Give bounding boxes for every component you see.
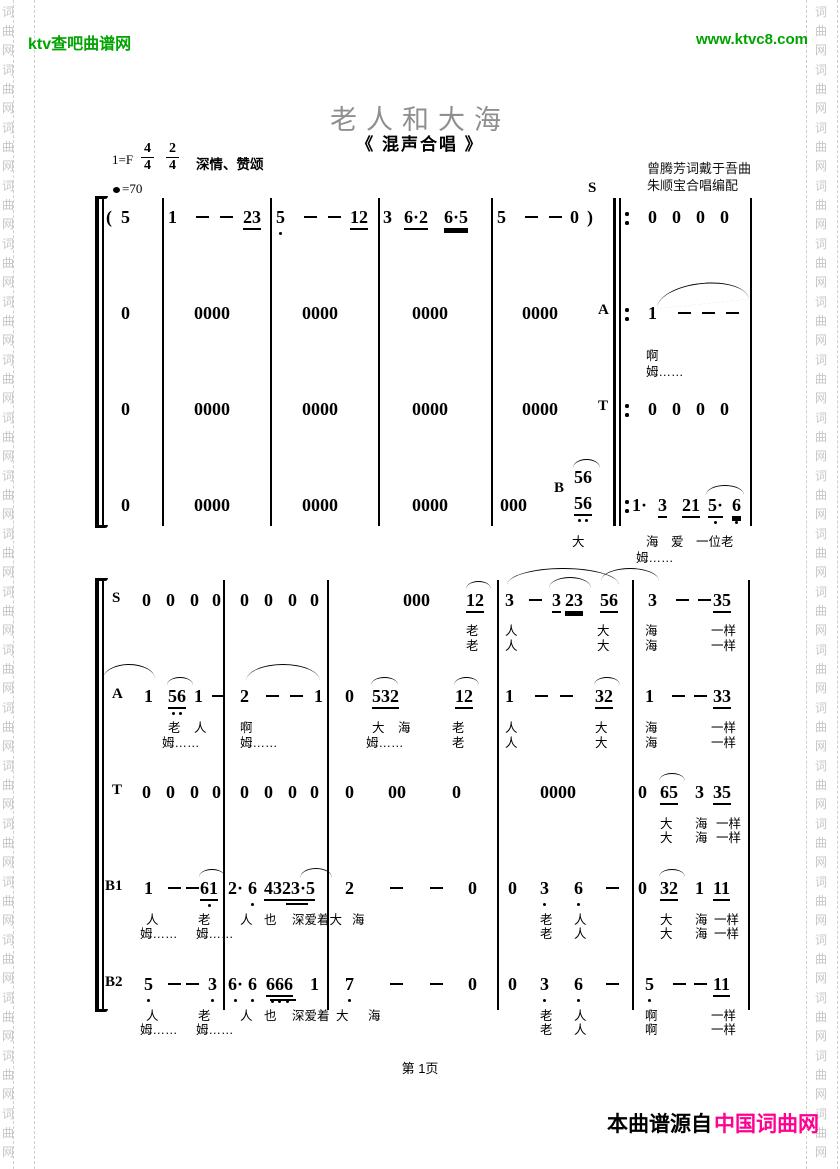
- note-token: 0: [570, 207, 579, 227]
- watermark-char: 网: [2, 334, 14, 346]
- lyric: 海: [645, 639, 658, 653]
- lyric: 姆……: [646, 365, 684, 379]
- note-token: 1: [144, 686, 153, 706]
- lyric: 一样: [711, 736, 736, 750]
- watermark-char: 曲: [2, 25, 14, 37]
- note-token: 23: [243, 207, 261, 230]
- duration-dash: [676, 599, 689, 601]
- duration-dash: [196, 216, 209, 218]
- duration-dash: [220, 216, 233, 218]
- octave-dots: [540, 999, 549, 1002]
- note-token: 0: [468, 878, 477, 898]
- voice-label-S: S: [588, 178, 596, 198]
- watermark-char: 网: [815, 856, 827, 868]
- watermark-char: 网: [2, 44, 14, 56]
- duration-dash: [328, 216, 341, 218]
- watermark-char: 词: [2, 470, 14, 482]
- watermark-char: 词: [2, 64, 14, 76]
- voice-label-S: S: [112, 588, 120, 608]
- lyric: 姆……: [196, 1023, 234, 1037]
- watermark-char: 词: [2, 528, 14, 540]
- watermark-char: 曲: [815, 257, 827, 269]
- lyric: 海: [352, 913, 365, 927]
- lyric: 老: [198, 913, 211, 927]
- lyric: 啊: [240, 721, 253, 735]
- lyric: 人: [505, 721, 518, 735]
- duration-dash: [290, 695, 303, 697]
- lyric: 老: [540, 1023, 553, 1037]
- watermark-char: 曲: [815, 315, 827, 327]
- watermark-char: 网: [815, 972, 827, 984]
- slur-arc: [655, 278, 749, 309]
- lyric: 啊: [645, 1023, 658, 1037]
- note-token: 0: [720, 207, 729, 227]
- note-token: 0: [121, 495, 130, 515]
- duration-dash: [606, 983, 619, 985]
- lyric: 姆……: [140, 927, 178, 941]
- duration-dash: [694, 983, 707, 985]
- watermark-char: 网: [2, 798, 14, 810]
- voice-label-A: A: [598, 300, 609, 320]
- duration-dash: [212, 695, 225, 697]
- watermark-char: 曲: [2, 779, 14, 791]
- note-token: 6: [248, 878, 257, 898]
- watermark-char: 网: [2, 566, 14, 578]
- duration-dash: [678, 312, 691, 314]
- duration-dash: [266, 695, 279, 697]
- watermark-char: 网: [2, 856, 14, 868]
- watermark-char: 网: [2, 1030, 14, 1042]
- watermark-char: 词: [2, 876, 14, 888]
- octave-dots: [540, 903, 549, 906]
- lyric: 深爱着: [292, 1009, 330, 1023]
- note-token: 0: [648, 399, 657, 419]
- system-bracket-inner: [102, 198, 104, 526]
- octave-dots: [645, 999, 654, 1002]
- note-token: 0: [212, 590, 221, 610]
- duration-dash: [168, 887, 181, 889]
- lyric: 人: [574, 913, 587, 927]
- note-token: 12: [455, 686, 473, 709]
- note-token: 0: [190, 782, 199, 802]
- note-token: 0000: [412, 399, 448, 419]
- note-token: 56: [168, 686, 186, 709]
- time-sig-denominator: 4: [141, 158, 154, 173]
- note-token: 0: [190, 590, 199, 610]
- note-token: 33: [713, 686, 731, 709]
- lyric: 人: [146, 913, 159, 927]
- note-token: 0: [121, 399, 130, 419]
- lyric: 大: [660, 817, 673, 831]
- watermark-char: 网: [2, 682, 14, 694]
- watermark-char: 词: [2, 992, 14, 1004]
- watermark-char: 词: [815, 760, 827, 772]
- note-token: 0: [648, 207, 657, 227]
- watermark-char: 网: [815, 1088, 827, 1100]
- note-token: (: [106, 207, 112, 227]
- octave-dots: [168, 712, 186, 715]
- note-token: 0: [508, 974, 517, 994]
- note-token: 5: [645, 974, 654, 994]
- note-token: 0: [264, 782, 273, 802]
- note-token: 000: [403, 590, 430, 610]
- right-watermark-column: 词曲网词曲网词曲网词曲网词曲网词曲网词曲网词曲网词曲网词曲网词曲网词曲网词曲网词…: [815, 0, 831, 1169]
- lyric: 老: [540, 927, 553, 941]
- note-token: 0: [166, 782, 175, 802]
- site-name-link[interactable]: ktv查吧曲谱网: [28, 30, 131, 54]
- note-token: 0: [288, 782, 297, 802]
- lyric: 老: [540, 913, 553, 927]
- lyric: 姆……: [196, 927, 234, 941]
- note-token: 0000: [302, 303, 338, 323]
- watermark-char: 曲: [815, 605, 827, 617]
- note-token: 5: [121, 207, 130, 227]
- note-token: 35: [713, 590, 731, 613]
- repeat-dot: [625, 221, 629, 225]
- watermark-char: 曲: [2, 895, 14, 907]
- watermark-char: 网: [815, 682, 827, 694]
- repeat-dot: [625, 212, 629, 216]
- note-token: 11: [713, 974, 730, 997]
- watermark-char: 网: [2, 914, 14, 926]
- note-token: 2: [240, 686, 249, 706]
- note-token: 0000: [522, 303, 558, 323]
- watermark-char: 词: [2, 760, 14, 772]
- note-token: 7: [345, 974, 354, 994]
- slur-arc: [594, 677, 620, 685]
- watermark-char: 词: [815, 354, 827, 366]
- slur-arc: [573, 459, 600, 468]
- duration-dash: [535, 695, 548, 697]
- score-page: 词曲网词曲网词曲网词曲网词曲网词曲网词曲网词曲网词曲网词曲网词曲网词曲网词曲网词…: [0, 0, 840, 1169]
- barline: [327, 580, 329, 1010]
- slur-arc: [167, 677, 193, 685]
- watermark-char: 曲: [2, 431, 14, 443]
- duration-dash: [560, 695, 573, 697]
- lyric: 一样: [711, 624, 736, 638]
- note-token: 61: [200, 878, 218, 901]
- lyric: 老: [466, 639, 479, 653]
- note-token: 5: [276, 207, 285, 227]
- repeat-dot: [625, 509, 629, 513]
- octave-dots: [276, 232, 285, 235]
- note-token: 6·: [228, 974, 243, 994]
- system-bracket: [95, 580, 99, 1010]
- lyric: 大: [595, 736, 608, 750]
- note-token: 6: [248, 974, 257, 994]
- watermark-char: 网: [815, 450, 827, 462]
- watermark-char: 词: [2, 1108, 14, 1120]
- duration-dash: [430, 983, 443, 985]
- note-token: 56: [600, 590, 618, 613]
- duration-dash: [726, 312, 739, 314]
- key-signature: 1=F: [112, 152, 133, 168]
- note-token: 6·2: [404, 207, 428, 230]
- note-token: 0: [142, 590, 151, 610]
- note-token: 0: [638, 782, 647, 802]
- note-token: 0: [468, 974, 477, 994]
- note-token: 0: [345, 686, 354, 706]
- lyric: 人: [505, 639, 518, 653]
- lyric: 老: [466, 624, 479, 638]
- watermark-char: 网: [815, 740, 827, 752]
- watermark-char: 曲: [815, 663, 827, 675]
- watermark-char: 曲: [815, 895, 827, 907]
- time-sig-denominator: 4: [166, 158, 179, 173]
- watermark-char: 网: [815, 508, 827, 520]
- bracket-hook-bottom: [95, 525, 108, 528]
- note-token: 0000: [412, 303, 448, 323]
- left-watermark-column: 词曲网词曲网词曲网词曲网词曲网词曲网词曲网词曲网词曲网词曲网词曲网词曲网词曲网词…: [2, 0, 18, 1169]
- note-token: 6: [574, 974, 583, 994]
- octave-dots: [708, 521, 723, 524]
- watermark-char: 曲: [2, 315, 14, 327]
- note-token: 56: [574, 493, 592, 516]
- note-token: 1: [194, 686, 203, 706]
- site-url-link[interactable]: www.ktvc8.com: [696, 31, 808, 48]
- watermark-char: 网: [2, 160, 14, 172]
- note-token: 6·5: [444, 207, 468, 230]
- note-token: 6: [574, 878, 583, 898]
- watermark-char: 网: [815, 1030, 827, 1042]
- note-token: 0000: [194, 399, 230, 419]
- watermark-char: 曲: [2, 605, 14, 617]
- watermark-char: 曲: [2, 83, 14, 95]
- voice-label-B: B: [554, 478, 564, 498]
- lyric: 人: [146, 1009, 159, 1023]
- lyric: 老: [452, 736, 465, 750]
- note-token: 3: [208, 974, 217, 994]
- watermark-char: 曲: [2, 1127, 14, 1139]
- watermark-char: 曲: [815, 721, 827, 733]
- watermark-char: 曲: [815, 779, 827, 791]
- note-token: 3: [658, 495, 667, 518]
- note-token: 0: [310, 782, 319, 802]
- watermark-char: 曲: [2, 489, 14, 501]
- duration-dash: [186, 887, 199, 889]
- octave-dots: [574, 903, 583, 906]
- source-prefix: 本曲谱源自: [607, 1108, 712, 1138]
- lyric: 姆……: [162, 736, 200, 750]
- watermark-char: 曲: [2, 373, 14, 385]
- lyric: 深爱着大: [292, 913, 342, 927]
- lyric: 海: [695, 831, 708, 845]
- barline: [632, 580, 634, 1010]
- note-token: 1: [645, 686, 654, 706]
- duration-dash: [698, 599, 711, 601]
- note-token: 65: [660, 782, 678, 805]
- watermark-char: 曲: [2, 721, 14, 733]
- duration-dash: [304, 216, 317, 218]
- voice-label-T: T: [112, 780, 122, 800]
- note-token: 32: [660, 878, 678, 901]
- watermark-char: 词: [815, 412, 827, 424]
- watermark-char: 网: [815, 624, 827, 636]
- watermark-char: 词: [815, 238, 827, 250]
- watermark-char: 曲: [815, 489, 827, 501]
- watermark-char: 词: [2, 354, 14, 366]
- octave-dots: [208, 999, 217, 1002]
- watermark-char: 网: [2, 740, 14, 752]
- extra-underline: [286, 903, 308, 905]
- duration-dash: [168, 983, 181, 985]
- watermark-char: 词: [815, 992, 827, 1004]
- time-signature: 4 4: [141, 142, 154, 173]
- watermark-char: 词: [2, 644, 14, 656]
- note-token: 0: [452, 782, 461, 802]
- watermark-char: 网: [2, 972, 14, 984]
- lyric: 人: [240, 1009, 253, 1023]
- lyric: 海: [695, 913, 708, 927]
- watermark-char: 曲: [815, 837, 827, 849]
- lyric: 海: [645, 624, 658, 638]
- watermark-char: 曲: [815, 547, 827, 559]
- voice-label-B2: B2: [105, 972, 123, 992]
- octave-dots: [228, 999, 243, 1002]
- note-token: 3: [552, 590, 561, 613]
- slur-arc: [659, 773, 685, 781]
- watermark-char: 网: [2, 508, 14, 520]
- note-token: 0000: [540, 782, 576, 802]
- note-token: 3: [505, 590, 514, 610]
- lyric: 一样: [714, 913, 739, 927]
- duration-dash: [672, 695, 685, 697]
- octave-dots: [345, 999, 354, 1002]
- lyric: 老: [540, 1009, 553, 1023]
- bracket-hook-top: [95, 578, 108, 581]
- repeat-barline-thick: [613, 198, 616, 526]
- lyric: 一样: [711, 1023, 736, 1037]
- watermark-char: 词: [815, 818, 827, 830]
- bracket-hook-top: [95, 196, 108, 199]
- watermark-char: 网: [815, 1146, 827, 1158]
- repeat-dot: [625, 308, 629, 312]
- note-token: 23: [565, 590, 583, 613]
- note-token: 2·: [228, 878, 243, 898]
- note-token: 1: [168, 207, 177, 227]
- watermark-char: 曲: [2, 953, 14, 965]
- note-token: 0: [672, 399, 681, 419]
- lyric: 老: [452, 721, 465, 735]
- watermark-char: 曲: [815, 199, 827, 211]
- watermark-char: 网: [815, 218, 827, 230]
- note-token: 5·: [708, 495, 723, 518]
- repeat-dot: [625, 413, 629, 417]
- lyric: 姆……: [140, 1023, 178, 1037]
- watermark-char: 词: [2, 934, 14, 946]
- lyric: 大: [595, 721, 608, 735]
- extra-underline: [270, 999, 296, 1001]
- page-number: 第 1页: [0, 1058, 840, 1077]
- note-token: 12: [350, 207, 368, 230]
- lyric: 一样: [711, 1009, 736, 1023]
- note-token: 0: [142, 782, 151, 802]
- expression-marking: 深情、赞颂: [196, 153, 264, 173]
- lyric: 一样: [711, 639, 736, 653]
- note-dot-icon: [113, 187, 120, 193]
- note-token: 0000: [194, 495, 230, 515]
- watermark-char: 词: [2, 238, 14, 250]
- duration-dash: [702, 312, 715, 314]
- watermark-char: 词: [815, 934, 827, 946]
- note-token: ): [587, 207, 593, 227]
- slur-arc: [706, 485, 744, 495]
- duration-dash: [186, 983, 199, 985]
- slur-arc: [371, 677, 398, 685]
- time-signature: 2 4: [166, 142, 179, 173]
- note-token: 35: [713, 782, 731, 805]
- watermark-char: 词: [815, 528, 827, 540]
- barline: [491, 198, 493, 526]
- note-token: 0: [212, 782, 221, 802]
- margin-dashed-line: [837, 0, 838, 1169]
- note-token: 56: [574, 467, 592, 487]
- note-token: 532: [372, 686, 399, 709]
- lyric: 人: [505, 624, 518, 638]
- margin-dashed-line: [34, 0, 35, 1169]
- watermark-char: 词: [815, 702, 827, 714]
- watermark-char: 网: [2, 1088, 14, 1100]
- lyric: 姆……: [240, 736, 278, 750]
- note-token: 0: [288, 590, 297, 610]
- note-token: 0: [121, 303, 130, 323]
- note-token: 11: [713, 878, 730, 901]
- watermark-char: 网: [815, 160, 827, 172]
- watermark-char: 词: [815, 644, 827, 656]
- watermark-char: 网: [2, 392, 14, 404]
- watermark-char: 曲: [815, 83, 827, 95]
- margin-dashed-line: [806, 0, 807, 1169]
- repeat-dot: [625, 404, 629, 408]
- watermark-char: 曲: [815, 431, 827, 443]
- repeat-dot: [625, 317, 629, 321]
- note-token: 1: [314, 686, 323, 706]
- source-brand-link[interactable]: 中国词曲网: [714, 1108, 819, 1138]
- note-token: 1: [144, 878, 153, 898]
- octave-dots: [732, 521, 741, 524]
- note-token: 0000: [412, 495, 448, 515]
- octave-dots: [248, 999, 257, 1002]
- watermark-char: 词: [2, 6, 14, 18]
- watermark-char: 网: [815, 566, 827, 578]
- note-token: 3: [540, 974, 549, 994]
- note-token: 0: [720, 399, 729, 419]
- watermark-char: 词: [2, 586, 14, 598]
- watermark-char: 词: [815, 470, 827, 482]
- watermark-char: 曲: [2, 257, 14, 269]
- note-token: 0: [310, 590, 319, 610]
- watermark-char: 曲: [815, 1011, 827, 1023]
- lyric: 海: [368, 1009, 381, 1023]
- note-token: 0: [638, 878, 647, 898]
- tempo-value: =70: [122, 181, 142, 196]
- note-token: 0: [672, 207, 681, 227]
- lyric: 啊: [646, 349, 659, 363]
- bracket-hook-bottom: [95, 1009, 108, 1012]
- note-token: 0000: [302, 399, 338, 419]
- note-token: 5: [144, 974, 153, 994]
- lyric: 海: [645, 736, 658, 750]
- note-token: 3: [540, 878, 549, 898]
- lyric: 大: [660, 913, 673, 927]
- lyric: 大: [372, 721, 385, 735]
- duration-dash: [606, 887, 619, 889]
- lyric: 爱: [671, 535, 684, 549]
- time-sig-numerator: 2: [166, 142, 179, 158]
- lyric: 人: [574, 1023, 587, 1037]
- system-bracket: [95, 198, 99, 526]
- system-bracket-inner: [102, 580, 104, 1010]
